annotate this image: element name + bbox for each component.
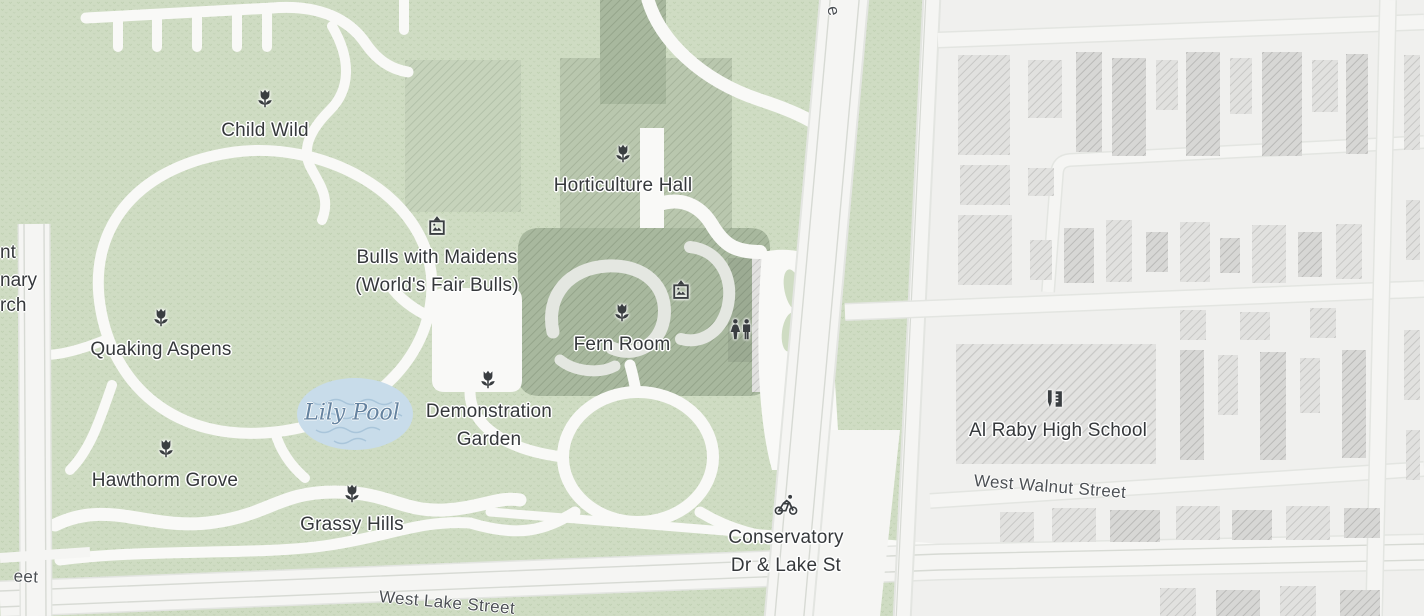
flower-icon[interactable]	[155, 438, 178, 461]
flower-icon[interactable]	[341, 483, 364, 506]
bulls-with-maidens-label[interactable]: Bulls with Maidens(World's Fair Bulls)	[355, 244, 519, 300]
west-walnut-street-label: West Walnut Street	[973, 471, 1127, 503]
map-viewport[interactable]: Child WildHorticulture HallBulls with Ma…	[0, 0, 1424, 616]
grassy-hills-label[interactable]: Grassy Hills	[300, 511, 404, 539]
art-gallery-icon[interactable]	[669, 279, 694, 304]
flower-icon[interactable]	[477, 369, 500, 392]
west-lake-street-label: West Lake Street	[378, 587, 516, 616]
horticulture-hall-label[interactable]: Horticulture Hall	[554, 172, 693, 200]
flower-icon[interactable]	[612, 143, 635, 166]
art-gallery-icon[interactable]	[425, 215, 450, 240]
al-raby-high-school-label[interactable]: Al Raby High School	[969, 417, 1147, 445]
flower-icon[interactable]	[254, 88, 277, 111]
quaking-aspens-label[interactable]: Quaking Aspens	[90, 336, 231, 364]
street-partial-bottom-left-label: eet	[13, 566, 39, 587]
fern-room-label[interactable]: Fern Room	[574, 331, 671, 359]
bike-share-icon[interactable]	[773, 492, 799, 518]
street-partial-top-label: e	[822, 4, 844, 18]
child-wild-label[interactable]: Child Wild	[221, 117, 309, 145]
conservatory-dr-lake-st-label[interactable]: ConservatoryDr & Lake St	[728, 524, 843, 580]
restroom-icon[interactable]	[728, 317, 755, 344]
flower-icon[interactable]	[611, 302, 634, 325]
school-icon[interactable]	[1043, 387, 1068, 412]
edge-fragment-3: rch	[0, 295, 26, 317]
edge-fragment-1: nt	[0, 242, 16, 264]
labels-layer: Child WildHorticulture HallBulls with Ma…	[0, 0, 1424, 616]
lily-pool-label[interactable]: Lily Pool	[304, 401, 400, 426]
hawthorm-grove-label[interactable]: Hawthorm Grove	[92, 467, 238, 495]
edge-fragment-2: nary	[0, 270, 37, 292]
flower-icon[interactable]	[150, 307, 173, 330]
demonstration-garden-label[interactable]: DemonstrationGarden	[426, 398, 552, 454]
